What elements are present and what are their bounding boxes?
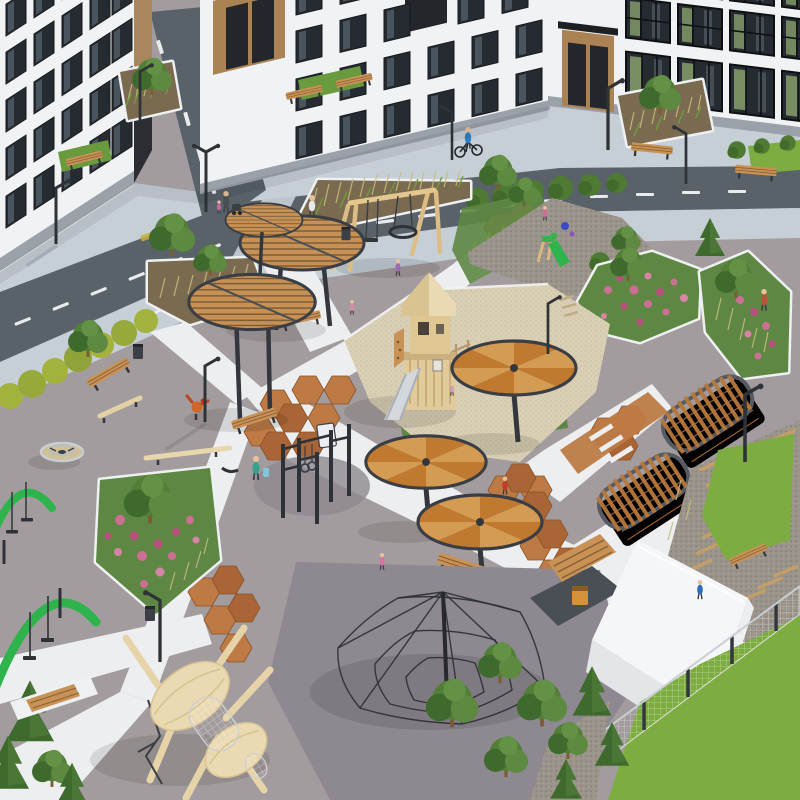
- render-viewport: [0, 0, 800, 800]
- tower-sign: [433, 360, 442, 371]
- toy-pinwheel-blue: [561, 222, 569, 230]
- toy: [570, 232, 575, 237]
- courtyard-scene: [0, 0, 800, 800]
- toy-pinwheel-green: [551, 233, 558, 240]
